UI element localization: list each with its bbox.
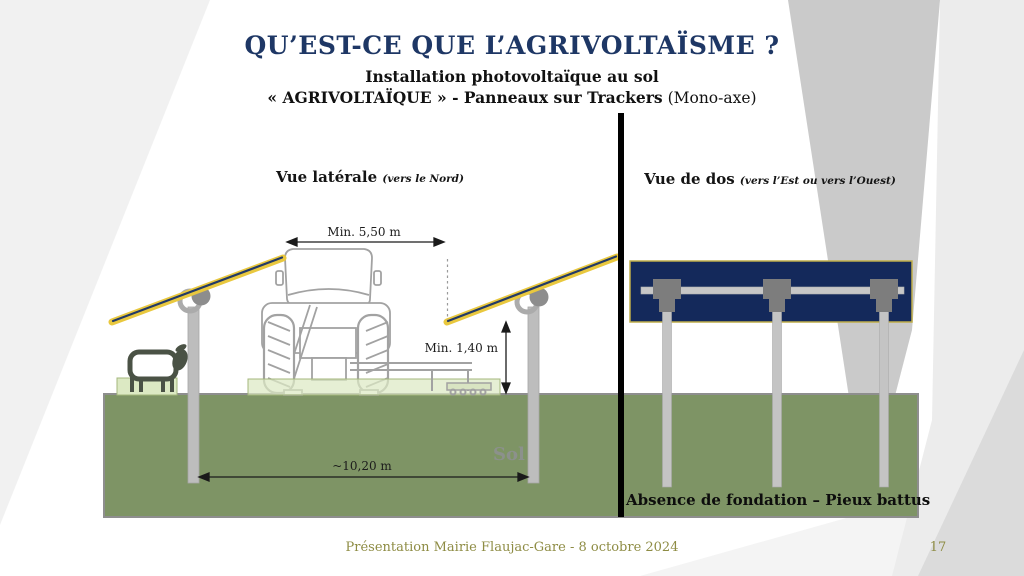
subtitle-line2: « AGRIVOLTAÏQUE » - Panneaux sur Tracker… — [0, 87, 1024, 109]
dimension-label-height: Min. 1,40 m — [400, 341, 498, 355]
tracker-post-middle — [528, 307, 539, 483]
tracker-post-left — [188, 307, 199, 483]
tractor-drawing — [262, 249, 390, 395]
dimension-label-spacing: ~10,20 m — [212, 459, 512, 473]
subtitle-line2-bold: « AGRIVOLTAÏQUE » - Panneaux sur Tracker… — [267, 88, 662, 107]
presentation-slide: QU’EST-CE QUE L’AGRIVOLTAÏSME ? Installa… — [0, 0, 1024, 576]
ground-label: Sol — [493, 444, 525, 465]
dimension-label-width: Min. 5,50 m — [285, 225, 443, 239]
left-view-label: Vue latérale (vers le Nord) — [150, 168, 590, 186]
right-view-note: (vers l’Est ou vers l’Ouest) — [740, 175, 896, 187]
left-view-title: Vue latérale — [276, 168, 377, 186]
subtitle-line2-regular: (Mono-axe) — [663, 89, 757, 107]
right-view-label: Vue de dos (vers l’Est ou vers l’Ouest) — [590, 170, 950, 188]
footer-text: Présentation Mairie Flaujac-Gare - 8 oct… — [0, 540, 1024, 555]
dimension-arrow-height — [502, 322, 510, 393]
slide-title: QU’EST-CE QUE L’AGRIVOLTAÏSME ? — [0, 31, 1024, 60]
foundation-caption: Absence de fondation – Pieux battus — [626, 491, 918, 509]
right-view-title: Vue de dos — [644, 170, 735, 188]
left-view-note: (vers le Nord) — [382, 173, 464, 185]
page-number: 17 — [918, 540, 958, 555]
subtitle-line1: Installation photovoltaïque au sol — [0, 66, 1024, 87]
soil-block-left — [104, 394, 620, 517]
slide-subtitle: Installation photovoltaïque au sol « AGR… — [0, 66, 1024, 109]
dimension-arrow-width — [287, 238, 444, 246]
